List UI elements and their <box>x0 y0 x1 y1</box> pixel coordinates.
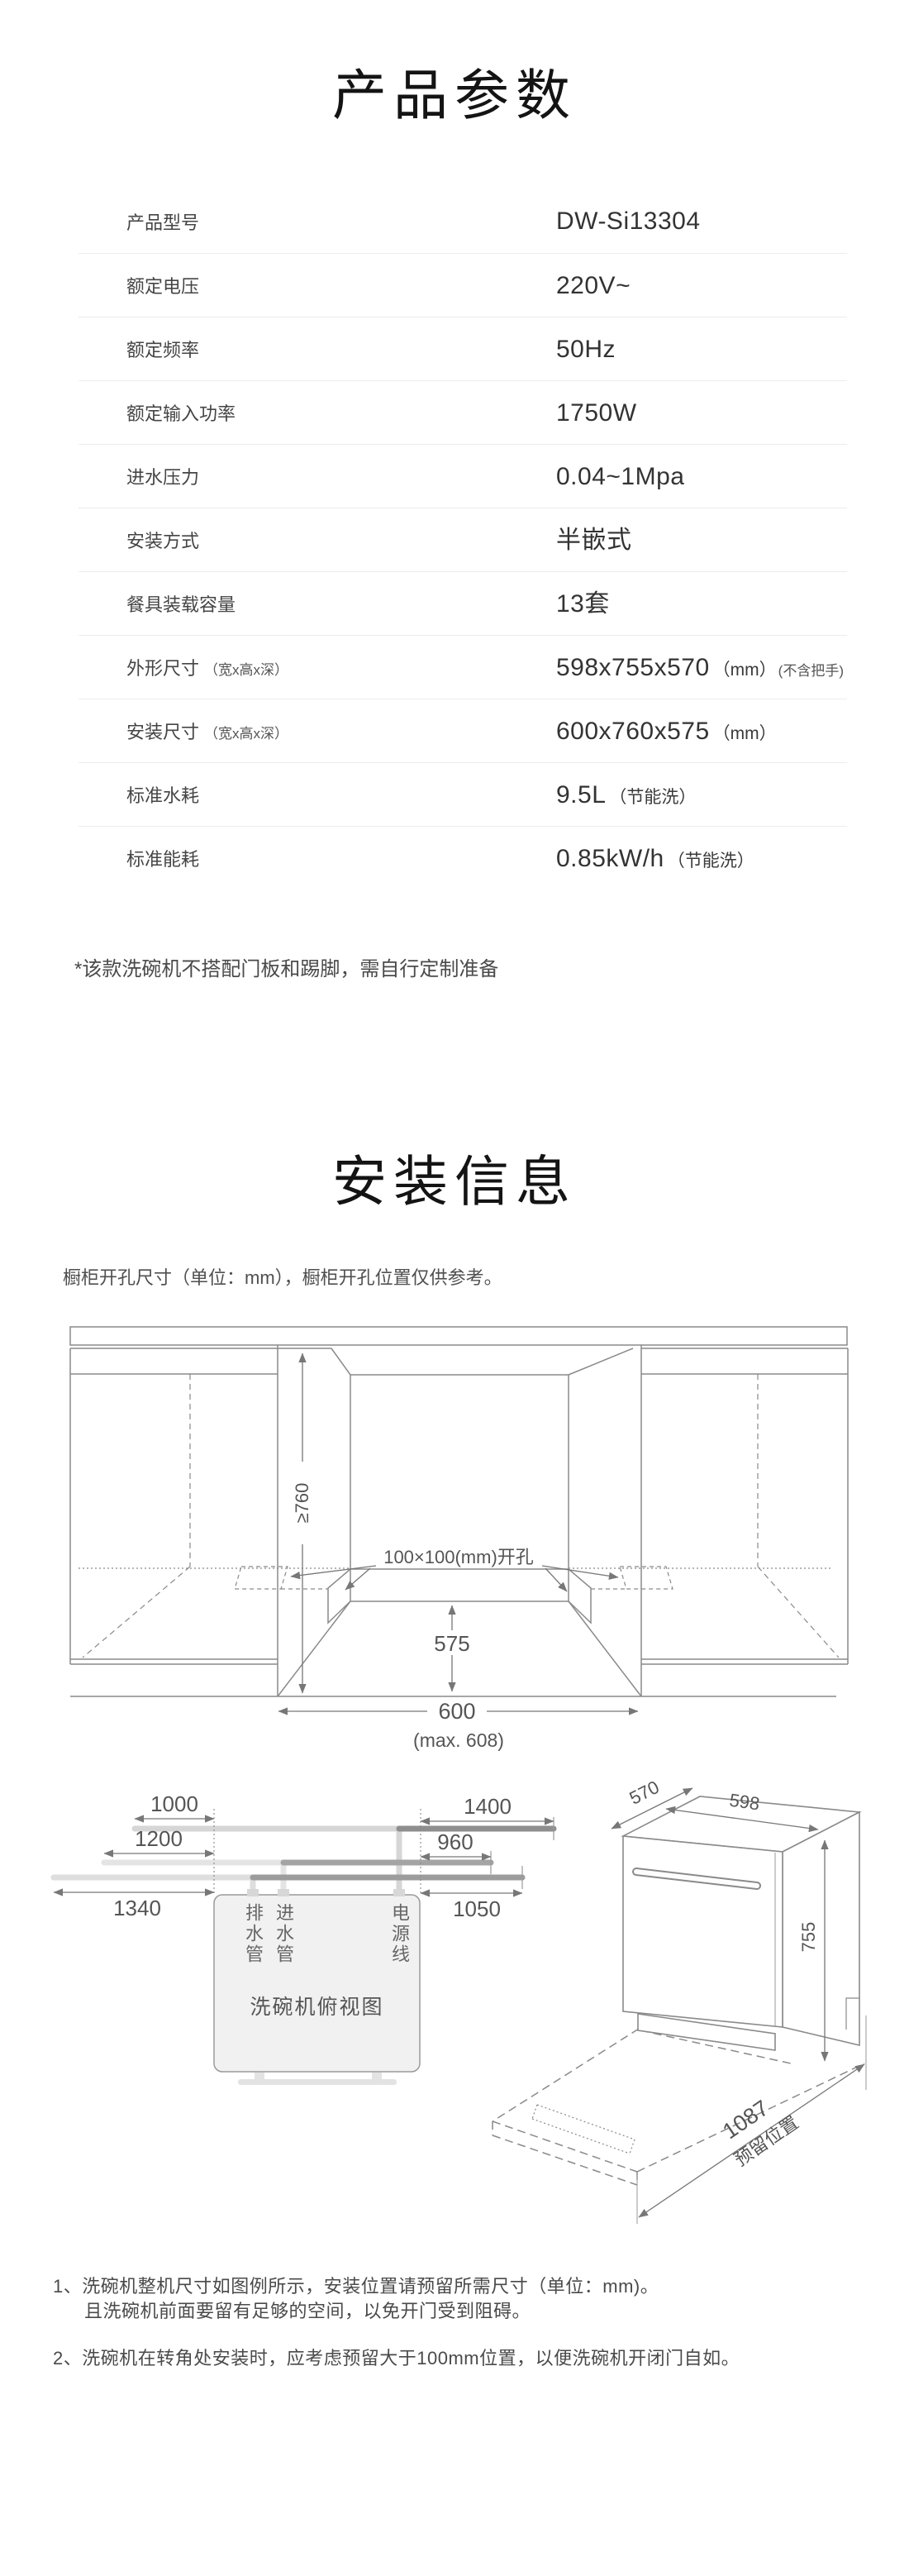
machine-front-face <box>623 1836 783 2027</box>
row-value: 1750W <box>556 381 637 444</box>
product-specs-title: 产品参数 <box>0 68 909 122</box>
niche-width-max-label: (max. 608) <box>413 1729 504 1751</box>
dim-1000: 1000 <box>150 1791 198 1816</box>
topview-diagram: 1000 1200 1340 1400 960 1050 <box>54 1791 554 2085</box>
table-row: 产品型号 DW-Si13304 <box>79 189 847 253</box>
row-value: 半嵌式 <box>556 508 632 571</box>
row-label: 餐具装载容量 <box>126 590 236 617</box>
row-label: 标准水耗 <box>126 781 199 808</box>
dim-1340: 1340 <box>113 1896 161 1920</box>
row-value: 220V~ <box>556 254 631 317</box>
page-root: 产品参数 产品型号 DW-Si13304 额定电压 220V~ 额定频率 50H… <box>0 0 909 2576</box>
row-label: 进水压力 <box>126 463 199 489</box>
table-row: 外形尺寸（宽x高x深） 598x755x570（mm）(不含把手) <box>79 635 847 699</box>
table-row: 标准水耗 9.5L（节能洗） <box>79 762 847 826</box>
power-cord-label: 电源线 <box>388 1903 410 1965</box>
row-value: 0.04~1Mpa <box>556 445 684 508</box>
dim-960: 960 <box>437 1829 473 1854</box>
row-value: 50Hz <box>556 317 616 380</box>
row-value: 598x755x570（mm）(不含把手) <box>556 636 844 699</box>
inlet-hose-label: 进水管 <box>273 1903 294 1965</box>
row-value: 13套 <box>556 572 610 635</box>
topview-front-bar <box>238 2079 397 2085</box>
row-value: 600x760x575（mm） <box>556 699 777 762</box>
row-value: 0.85kW/h（节能洗） <box>556 827 754 890</box>
table-row: 餐具装载容量 13套 <box>79 571 847 635</box>
table-row: 进水压力 0.04~1Mpa <box>79 444 847 508</box>
countertop <box>70 1327 847 1345</box>
hole-size-label: 100×100(mm)开孔 <box>383 1547 534 1567</box>
install-intro: 橱柜开孔尺寸（单位：mm），橱柜开孔位置仅供参考。 <box>63 1263 502 1290</box>
table-row: 额定频率 50Hz <box>79 317 847 380</box>
niche-height-label: ≥760 <box>292 1483 312 1524</box>
row-label: 外形尺寸（宽x高x深） <box>126 654 288 680</box>
spec-table: 产品型号 DW-Si13304 额定电压 220V~ 额定频率 50Hz 额定输… <box>79 189 847 890</box>
iso-width-label: 598 <box>728 1790 761 1815</box>
machine-right-face <box>783 1812 859 2045</box>
niche-depth-label: 575 <box>434 1631 469 1656</box>
spec-footnote: *该款洗碗机不搭配门板和踢脚，需自行定制准备 <box>74 952 498 981</box>
right-hole-outline <box>620 1567 673 1589</box>
iso-view-diagram: 570 598 755 1087 预留位置 <box>493 1777 866 2224</box>
table-row: 标准能耗 0.85kW/h（节能洗） <box>79 826 847 890</box>
row-label: 额定频率 <box>126 336 199 362</box>
iso-depth-label: 570 <box>626 1777 663 1809</box>
niche-width-label: 600 <box>438 1699 475 1724</box>
table-row: 额定电压 220V~ <box>79 253 847 317</box>
row-label-note: （宽x高x深） <box>204 662 288 678</box>
dim-1050: 1050 <box>453 1896 501 1921</box>
table-row: 安装尺寸（宽x高x深） 600x760x575（mm） <box>79 699 847 762</box>
install-note-1: 1、洗碗机整机尺寸如图例所示，安装位置请预留所需尺寸（单位：mm)。 <box>53 2272 659 2298</box>
topview-caption: 洗碗机俯视图 <box>214 1991 420 2020</box>
row-label-note: （宽x高x深） <box>204 726 288 742</box>
cabinet-dimensions <box>278 1353 638 1711</box>
drain-hose-left <box>54 1877 253 1893</box>
left-hole-outline <box>235 1567 288 1589</box>
row-label: 标准能耗 <box>126 845 199 871</box>
row-label: 额定输入功率 <box>126 399 236 426</box>
installation-diagrams: ≥760 100×100(mm)开孔 575 600 (max. 608) <box>0 1314 909 2249</box>
install-note-2: 2、洗碗机在转角处安装时，应考虑预留大于100mm位置，以便洗碗机开闭门自如。 <box>53 2344 740 2370</box>
iso-height-label: 755 <box>798 1922 819 1953</box>
install-info-title: 安装信息 <box>0 1154 909 1209</box>
dim-1400: 1400 <box>464 1794 512 1819</box>
row-label: 额定电压 <box>126 272 199 298</box>
row-label: 安装尺寸（宽x高x深） <box>126 718 288 744</box>
install-note-1b: 且洗碗机前面要留有足够的空间，以免开门受到阻碍。 <box>84 2297 531 2323</box>
row-value: 9.5L（节能洗） <box>556 763 696 826</box>
drain-hose-label: 排水管 <box>242 1903 264 1965</box>
dim-1200: 1200 <box>135 1826 183 1851</box>
row-value: DW-Si13304 <box>556 189 701 253</box>
table-row: 安装方式 半嵌式 <box>79 508 847 571</box>
row-label: 产品型号 <box>126 208 199 235</box>
table-row: 额定输入功率 1750W <box>79 380 847 444</box>
row-label: 安装方式 <box>126 527 199 553</box>
